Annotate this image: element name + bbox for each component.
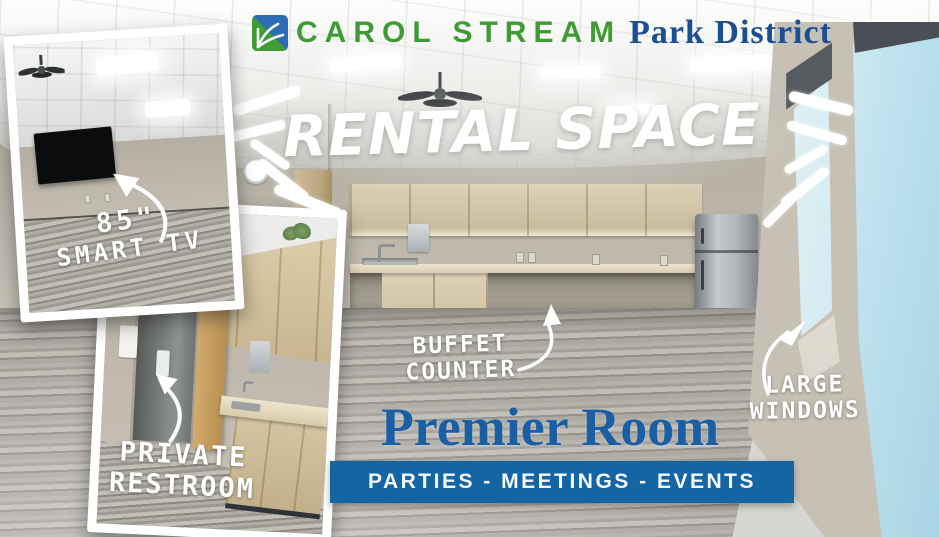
paper-towel-dispenser — [249, 341, 271, 374]
wall-outlet — [660, 255, 668, 266]
wall-outlet — [592, 254, 600, 265]
wall-outlet — [528, 252, 536, 263]
banner-text: PARTIES - MEETINGS - EVENTS — [368, 470, 756, 494]
buffet-counter-top — [350, 264, 744, 273]
paper-towel-dispenser — [408, 224, 429, 252]
banner: PARTIES - MEETINGS - EVENTS — [330, 461, 794, 503]
restroom-sign — [118, 325, 138, 357]
fridge-handle — [701, 228, 704, 244]
windows-arrow-icon — [752, 308, 824, 398]
brand-name: CAROL STREAM — [296, 16, 621, 50]
rental-space-poster: CAROL STREAM Park District RENTAL SPACE — [0, 0, 939, 537]
faucet-icon — [378, 244, 395, 262]
freezer-door-seam — [695, 250, 758, 253]
ceiling-fan-icon — [18, 53, 66, 86]
brand-subname: Park District — [629, 14, 832, 52]
fridge-handle — [701, 260, 704, 290]
buffet-arrow-icon — [505, 300, 575, 376]
ceiling-light — [540, 65, 602, 79]
faucet-icon — [243, 382, 254, 393]
callout-private-restroom: PRIVATE RESTROOM — [102, 435, 263, 505]
wall-outlet — [84, 194, 91, 203]
poster-title: RENTAL SPACE — [261, 91, 783, 171]
plant — [282, 222, 313, 245]
smart-tv-photo: 85" SMART TV — [13, 33, 235, 313]
room-name: Premier Room — [310, 396, 790, 458]
ceiling-light — [144, 99, 190, 118]
header-brand: CAROL STREAM Park District — [252, 14, 832, 52]
restroom-arrow-icon — [148, 368, 196, 446]
wall-outlet — [516, 252, 524, 263]
inset-photo-smart-tv: 85" SMART TV — [3, 23, 244, 322]
park-district-logo-icon — [252, 15, 288, 51]
